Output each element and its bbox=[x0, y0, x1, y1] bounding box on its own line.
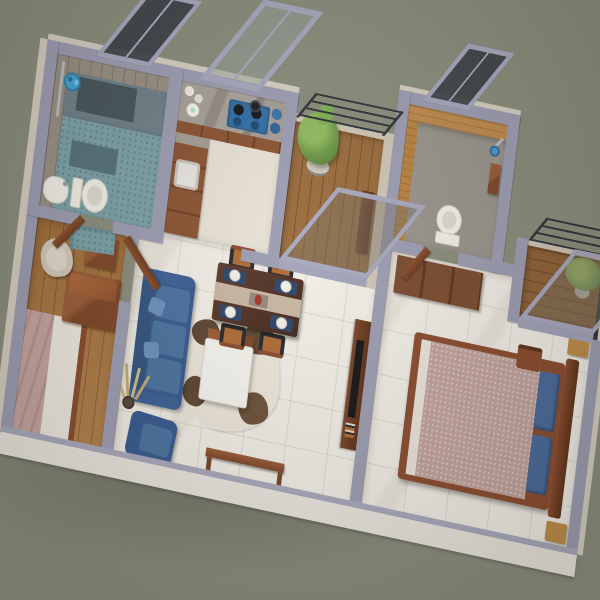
floorplan-scene bbox=[0, 0, 600, 600]
vignette bbox=[0, 0, 600, 600]
